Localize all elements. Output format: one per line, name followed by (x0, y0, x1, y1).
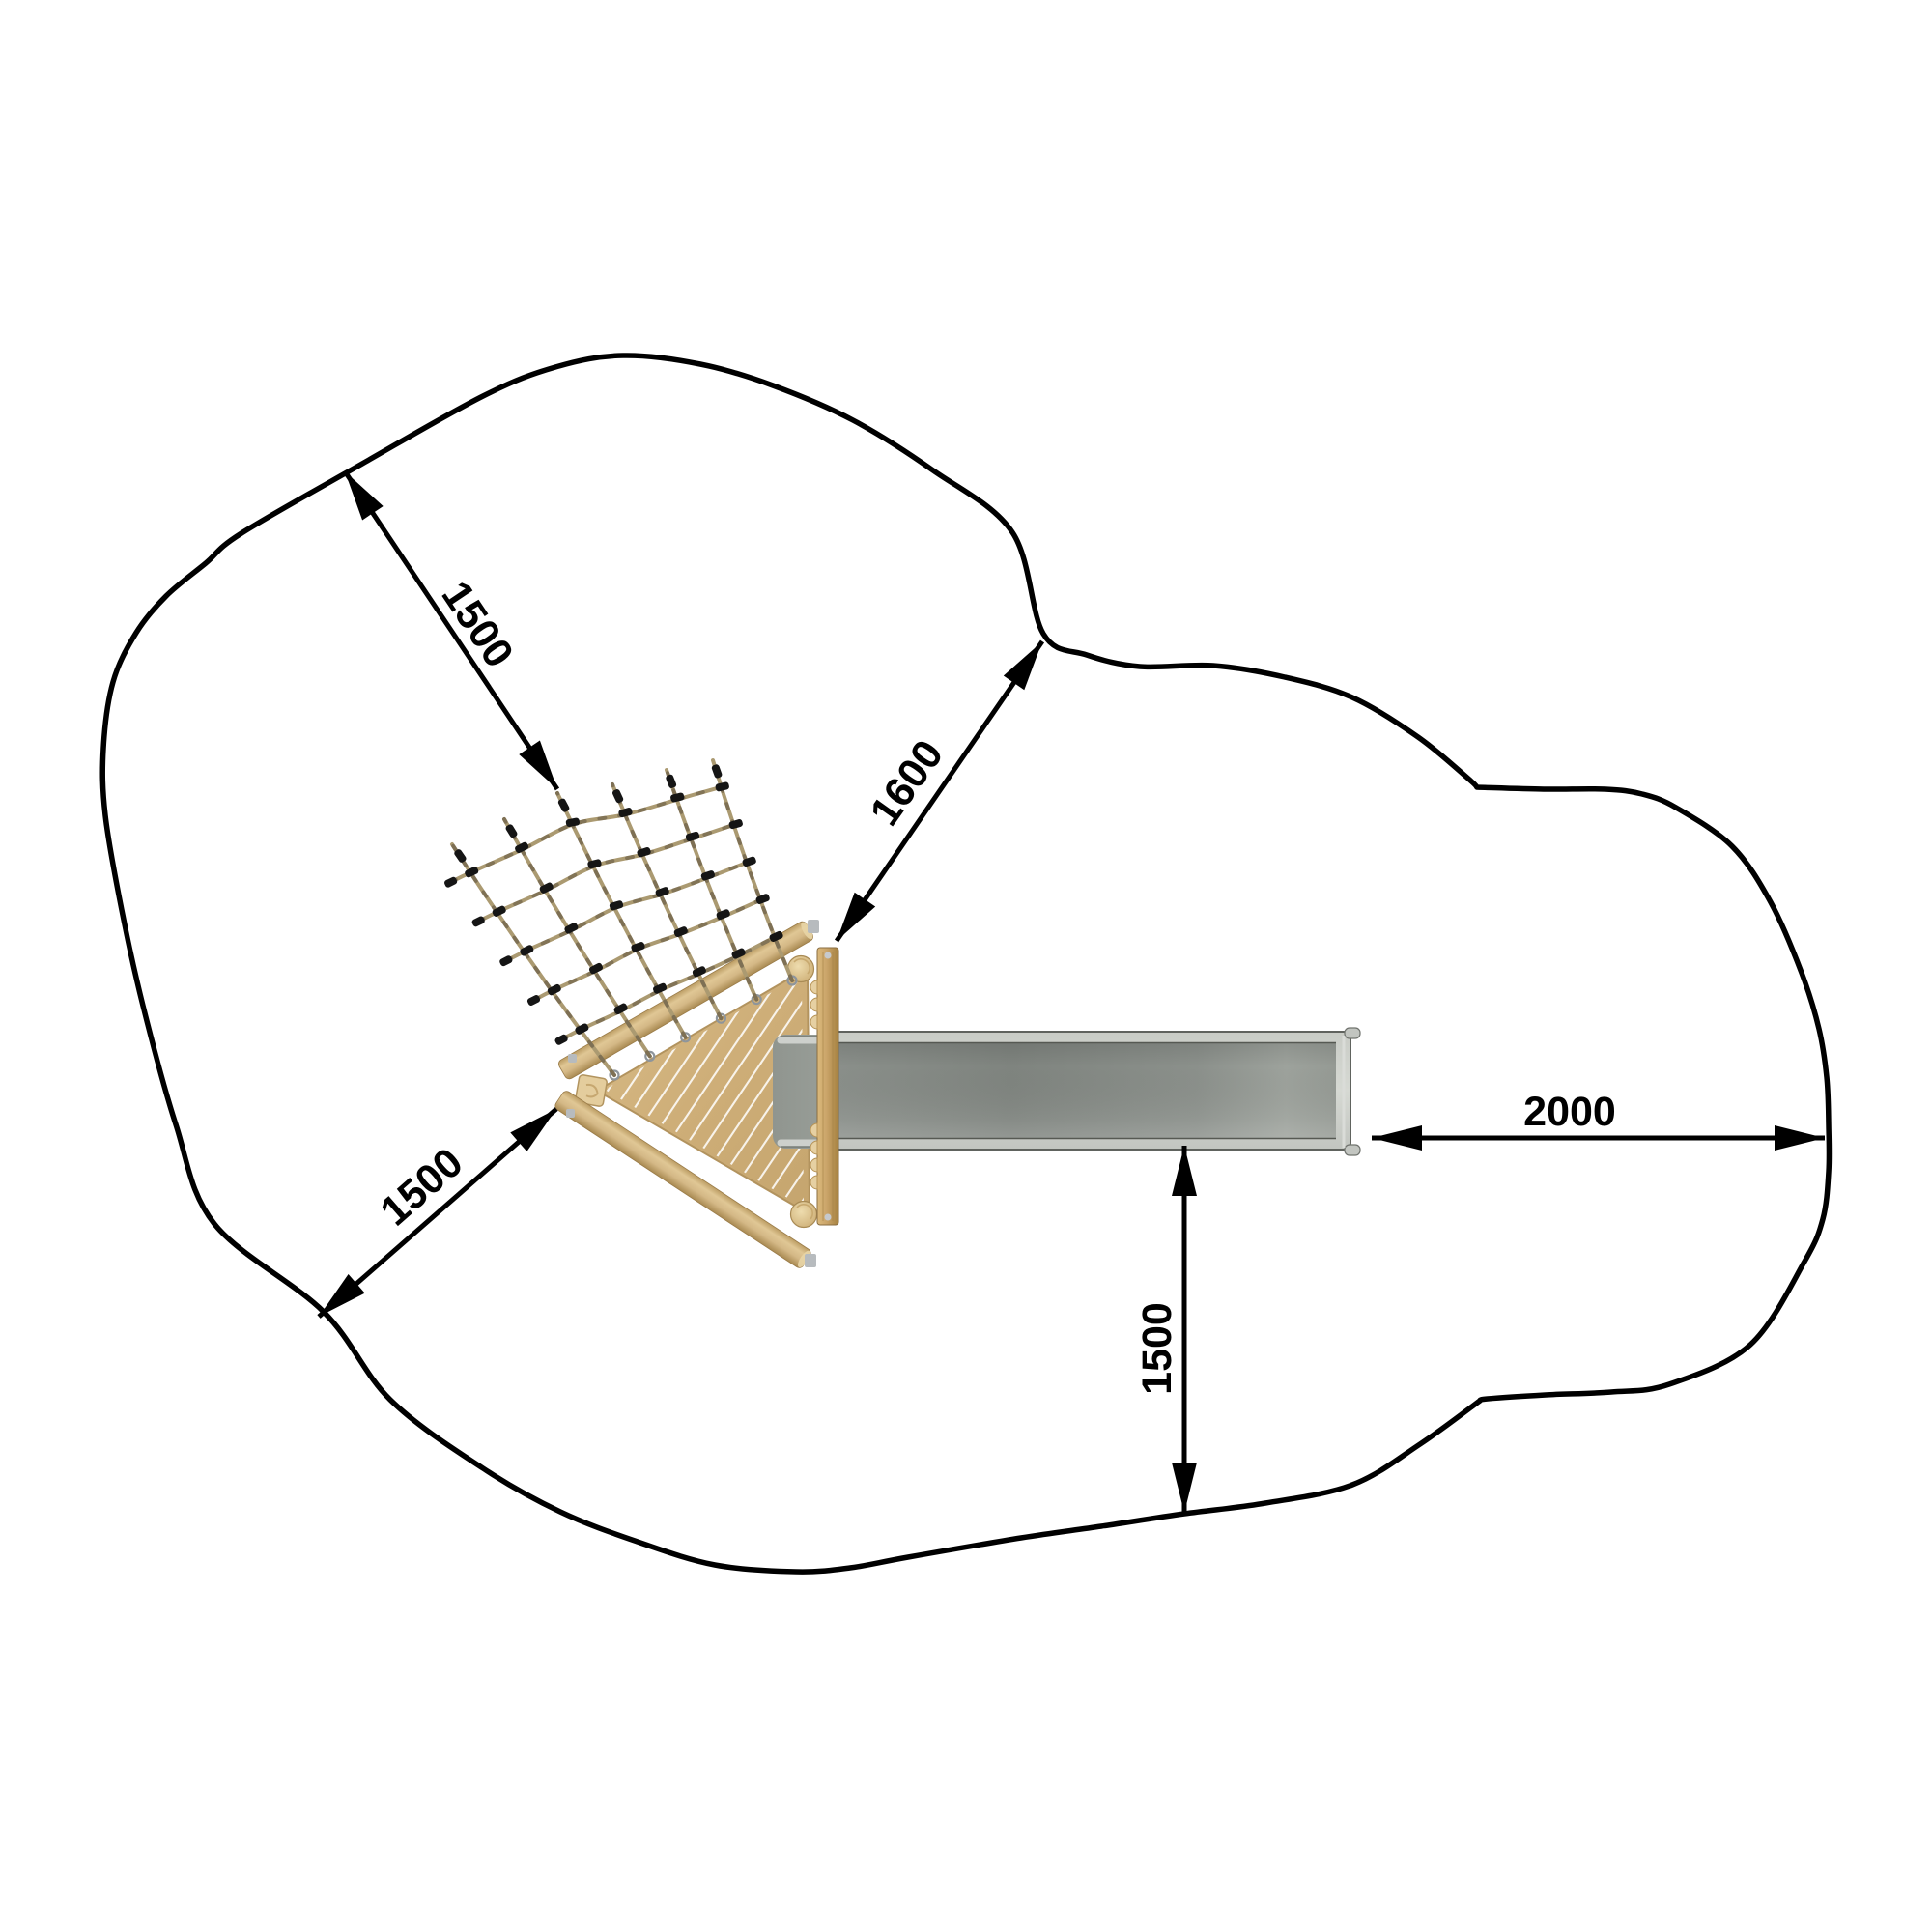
svg-text:1600: 1600 (862, 732, 952, 835)
svg-text:1500: 1500 (372, 1139, 472, 1235)
svg-text:2000: 2000 (1523, 1089, 1616, 1135)
svg-text:1500: 1500 (1134, 1302, 1180, 1395)
